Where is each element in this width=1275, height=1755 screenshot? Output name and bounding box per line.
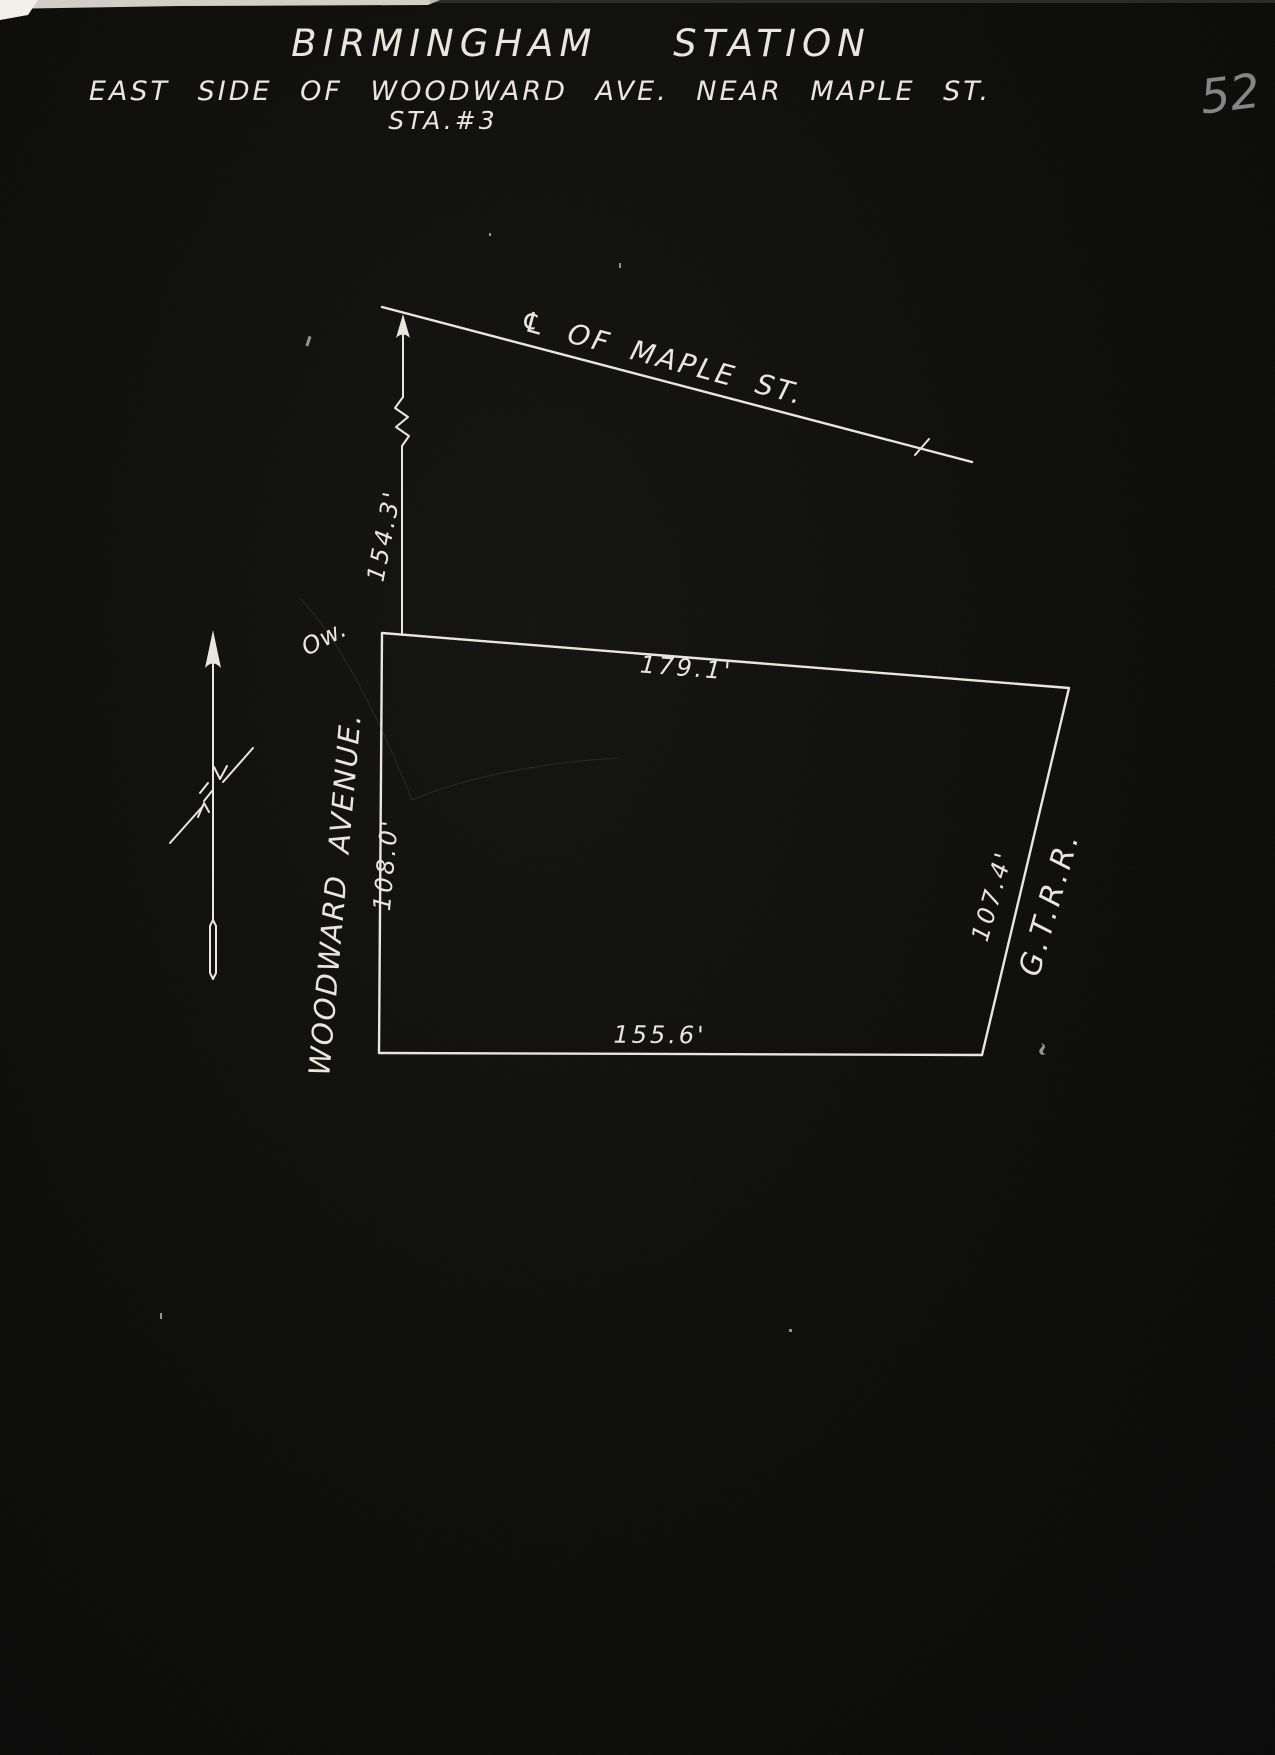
- film-grain-overlay: [0, 0, 1275, 1755]
- survey-photo: BIRMINGHAM STATION EAST SIDE OF WOODWARD…: [0, 0, 1275, 1755]
- survey-drawing: BIRMINGHAM STATION EAST SIDE OF WOODWARD…: [0, 0, 1275, 1755]
